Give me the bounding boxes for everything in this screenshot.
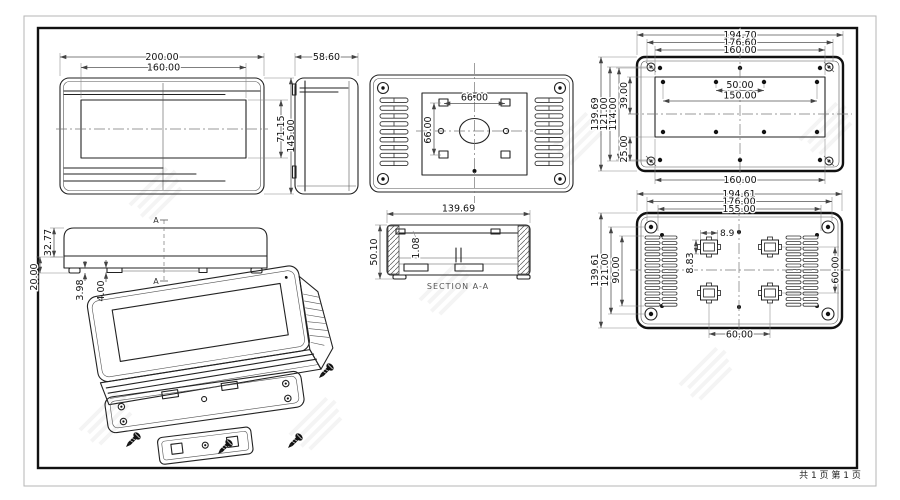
section-mark-top: A: [153, 216, 159, 225]
dim-mount-left-4: 39.00: [619, 82, 630, 109]
dim-boss-height: 8.83: [685, 252, 696, 273]
mount-holes-view: 194.70 176.60 160.00 139.69 121.00 114.0…: [590, 30, 852, 186]
rear-vesa-view: 66.00 66.00: [370, 63, 573, 203]
dim-foot-height: 3.98: [75, 279, 86, 300]
vent-col: [645, 236, 660, 306]
dim-back-vesa-h: 60.00: [726, 329, 753, 340]
dim-front-width: 200.00: [145, 52, 178, 63]
dim-mount-left-3: 114.00: [608, 97, 619, 130]
vent-col: [803, 236, 818, 306]
dim-section-height: 50.10: [369, 238, 380, 265]
screw: [123, 431, 142, 450]
dim-back-left-3: 90.00: [611, 256, 622, 283]
page-footer: 共 1 页 第 1 页: [799, 469, 861, 481]
vent-col: [662, 236, 677, 306]
exploded-view: [86, 261, 336, 465]
dim-section-wall: 1.08: [411, 237, 422, 258]
dim-mount-top-3: 160.00: [723, 45, 756, 56]
side-view: 58.60: [293, 52, 359, 194]
dim-front-window-width: 160.00: [147, 63, 180, 74]
dim-section-width: 139.69: [442, 204, 475, 215]
front-view: 200.00 160.00 71.15 145.00: [56, 52, 297, 194]
engineering-drawing: 200.00 160.00 71.15 145.00 58.60: [0, 0, 900, 500]
dim-mount-hole-span-wide: 150.00: [723, 91, 756, 102]
vesa-boss: [698, 237, 721, 257]
dim-side-depth: 58.60: [313, 52, 340, 63]
vent-grid-left: [380, 98, 408, 166]
section-label: SECTION A-A: [427, 282, 489, 291]
back-vent-view: 194.61 176.00 155.00 139.61 121.00 90.00…: [590, 189, 850, 340]
vent-col: [786, 236, 801, 306]
section-mark-bottom: A: [153, 277, 159, 286]
dim-tab-height: 4.00: [96, 280, 107, 301]
base-plate: [104, 370, 305, 433]
vent-grid-right: [535, 98, 563, 166]
dim-vesa-v: 66.00: [423, 116, 434, 143]
dim-mount-left-5: 25.00: [619, 135, 630, 162]
section-view: 139.69 50.10 1.08 SECTION A-A: [369, 204, 530, 292]
mount-bracket: [157, 427, 254, 465]
dim-top-height-lower: 20.00: [29, 263, 40, 290]
dim-mount-bottom: 160.00: [723, 175, 756, 186]
vesa-boss: [759, 283, 782, 303]
vesa-boss: [759, 237, 782, 257]
dim-top-height-upper: 32.77: [43, 229, 54, 256]
dim-back-vesa-v: 60.00: [830, 256, 841, 283]
dim-mount-hole-span: 50.00: [726, 80, 753, 91]
dim-front-height: 145.00: [286, 119, 297, 152]
dim-boss-width: 8.9: [720, 229, 735, 239]
dim-vesa-h: 66.00: [461, 93, 488, 104]
vesa-boss: [698, 283, 721, 303]
dim-back-top-3: 155.00: [722, 204, 755, 215]
drawing-sheet: 200.00 160.00 71.15 145.00 58.60: [0, 0, 900, 500]
top-profile-view: A A 32.77 20.00 3.98 4.00: [29, 216, 267, 302]
dim-back-left-2: 121.00: [600, 253, 611, 286]
